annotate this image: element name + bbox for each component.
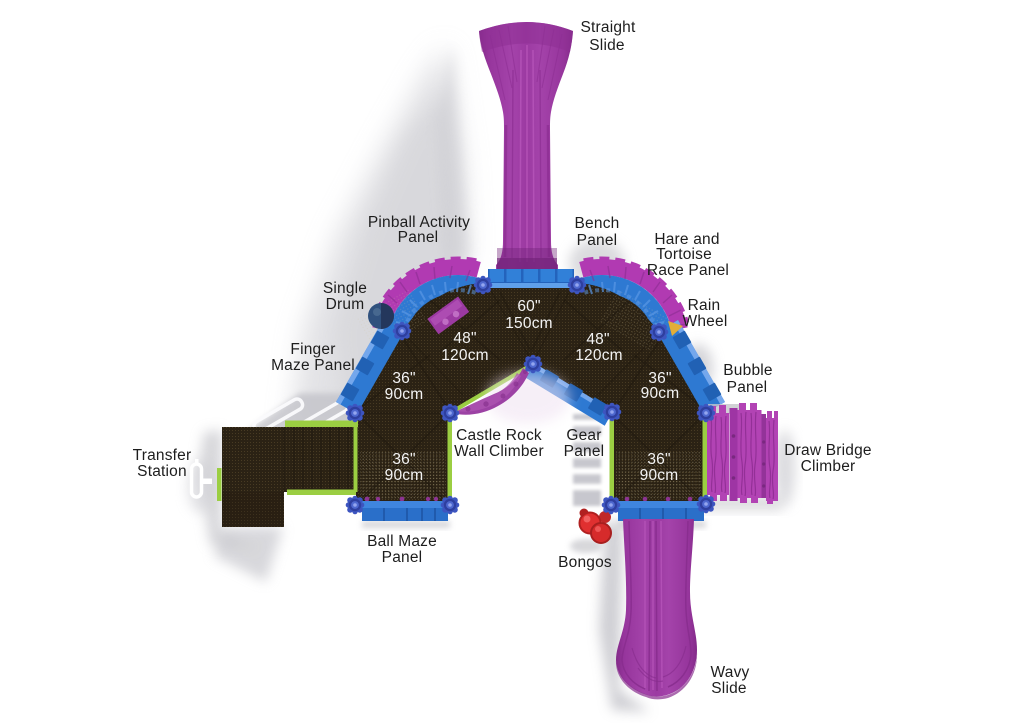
svg-text:Draw Bridge: Draw Bridge (784, 442, 871, 459)
svg-text:Straight: Straight (580, 19, 636, 36)
svg-text:Finger: Finger (290, 341, 335, 358)
svg-text:Slide: Slide (711, 680, 746, 697)
svg-text:Castle Rock: Castle Rock (456, 427, 542, 444)
svg-text:Slide: Slide (589, 37, 624, 54)
svg-text:Single: Single (323, 280, 367, 297)
svg-text:Transfer: Transfer (133, 447, 192, 464)
svg-text:48": 48" (586, 331, 609, 348)
svg-text:Race Panel: Race Panel (647, 262, 729, 279)
svg-text:Panel: Panel (727, 379, 768, 396)
svg-text:36": 36" (647, 451, 670, 468)
svg-text:90cm: 90cm (640, 467, 679, 484)
svg-text:120cm: 120cm (575, 347, 623, 364)
svg-text:Panel: Panel (398, 229, 439, 246)
svg-text:36": 36" (392, 451, 415, 468)
svg-text:90cm: 90cm (385, 386, 424, 403)
svg-text:Wavy: Wavy (711, 664, 750, 681)
svg-text:Gear: Gear (566, 427, 601, 444)
svg-text:Bubble: Bubble (723, 362, 772, 379)
svg-text:Rain: Rain (688, 297, 721, 314)
svg-text:Tortoise: Tortoise (656, 246, 712, 263)
svg-text:Station: Station (137, 463, 187, 480)
svg-text:Panel: Panel (564, 443, 605, 460)
svg-text:150cm: 150cm (505, 315, 553, 332)
svg-text:Maze Panel: Maze Panel (271, 357, 355, 374)
svg-text:90cm: 90cm (641, 385, 680, 402)
svg-text:Wall Climber: Wall Climber (454, 443, 544, 460)
svg-text:Bongos: Bongos (558, 554, 612, 571)
svg-text:Ball Maze: Ball Maze (367, 533, 437, 550)
svg-text:60": 60" (517, 298, 540, 315)
svg-text:Wheel: Wheel (683, 313, 728, 330)
svg-text:Panel: Panel (382, 549, 423, 566)
svg-text:Panel: Panel (577, 232, 618, 249)
svg-text:48": 48" (453, 330, 476, 347)
svg-text:Bench: Bench (575, 215, 620, 232)
svg-text:36": 36" (392, 370, 415, 387)
svg-text:Climber: Climber (801, 458, 856, 475)
svg-text:90cm: 90cm (385, 467, 424, 484)
svg-text:Drum: Drum (326, 296, 365, 313)
svg-text:120cm: 120cm (441, 347, 489, 364)
